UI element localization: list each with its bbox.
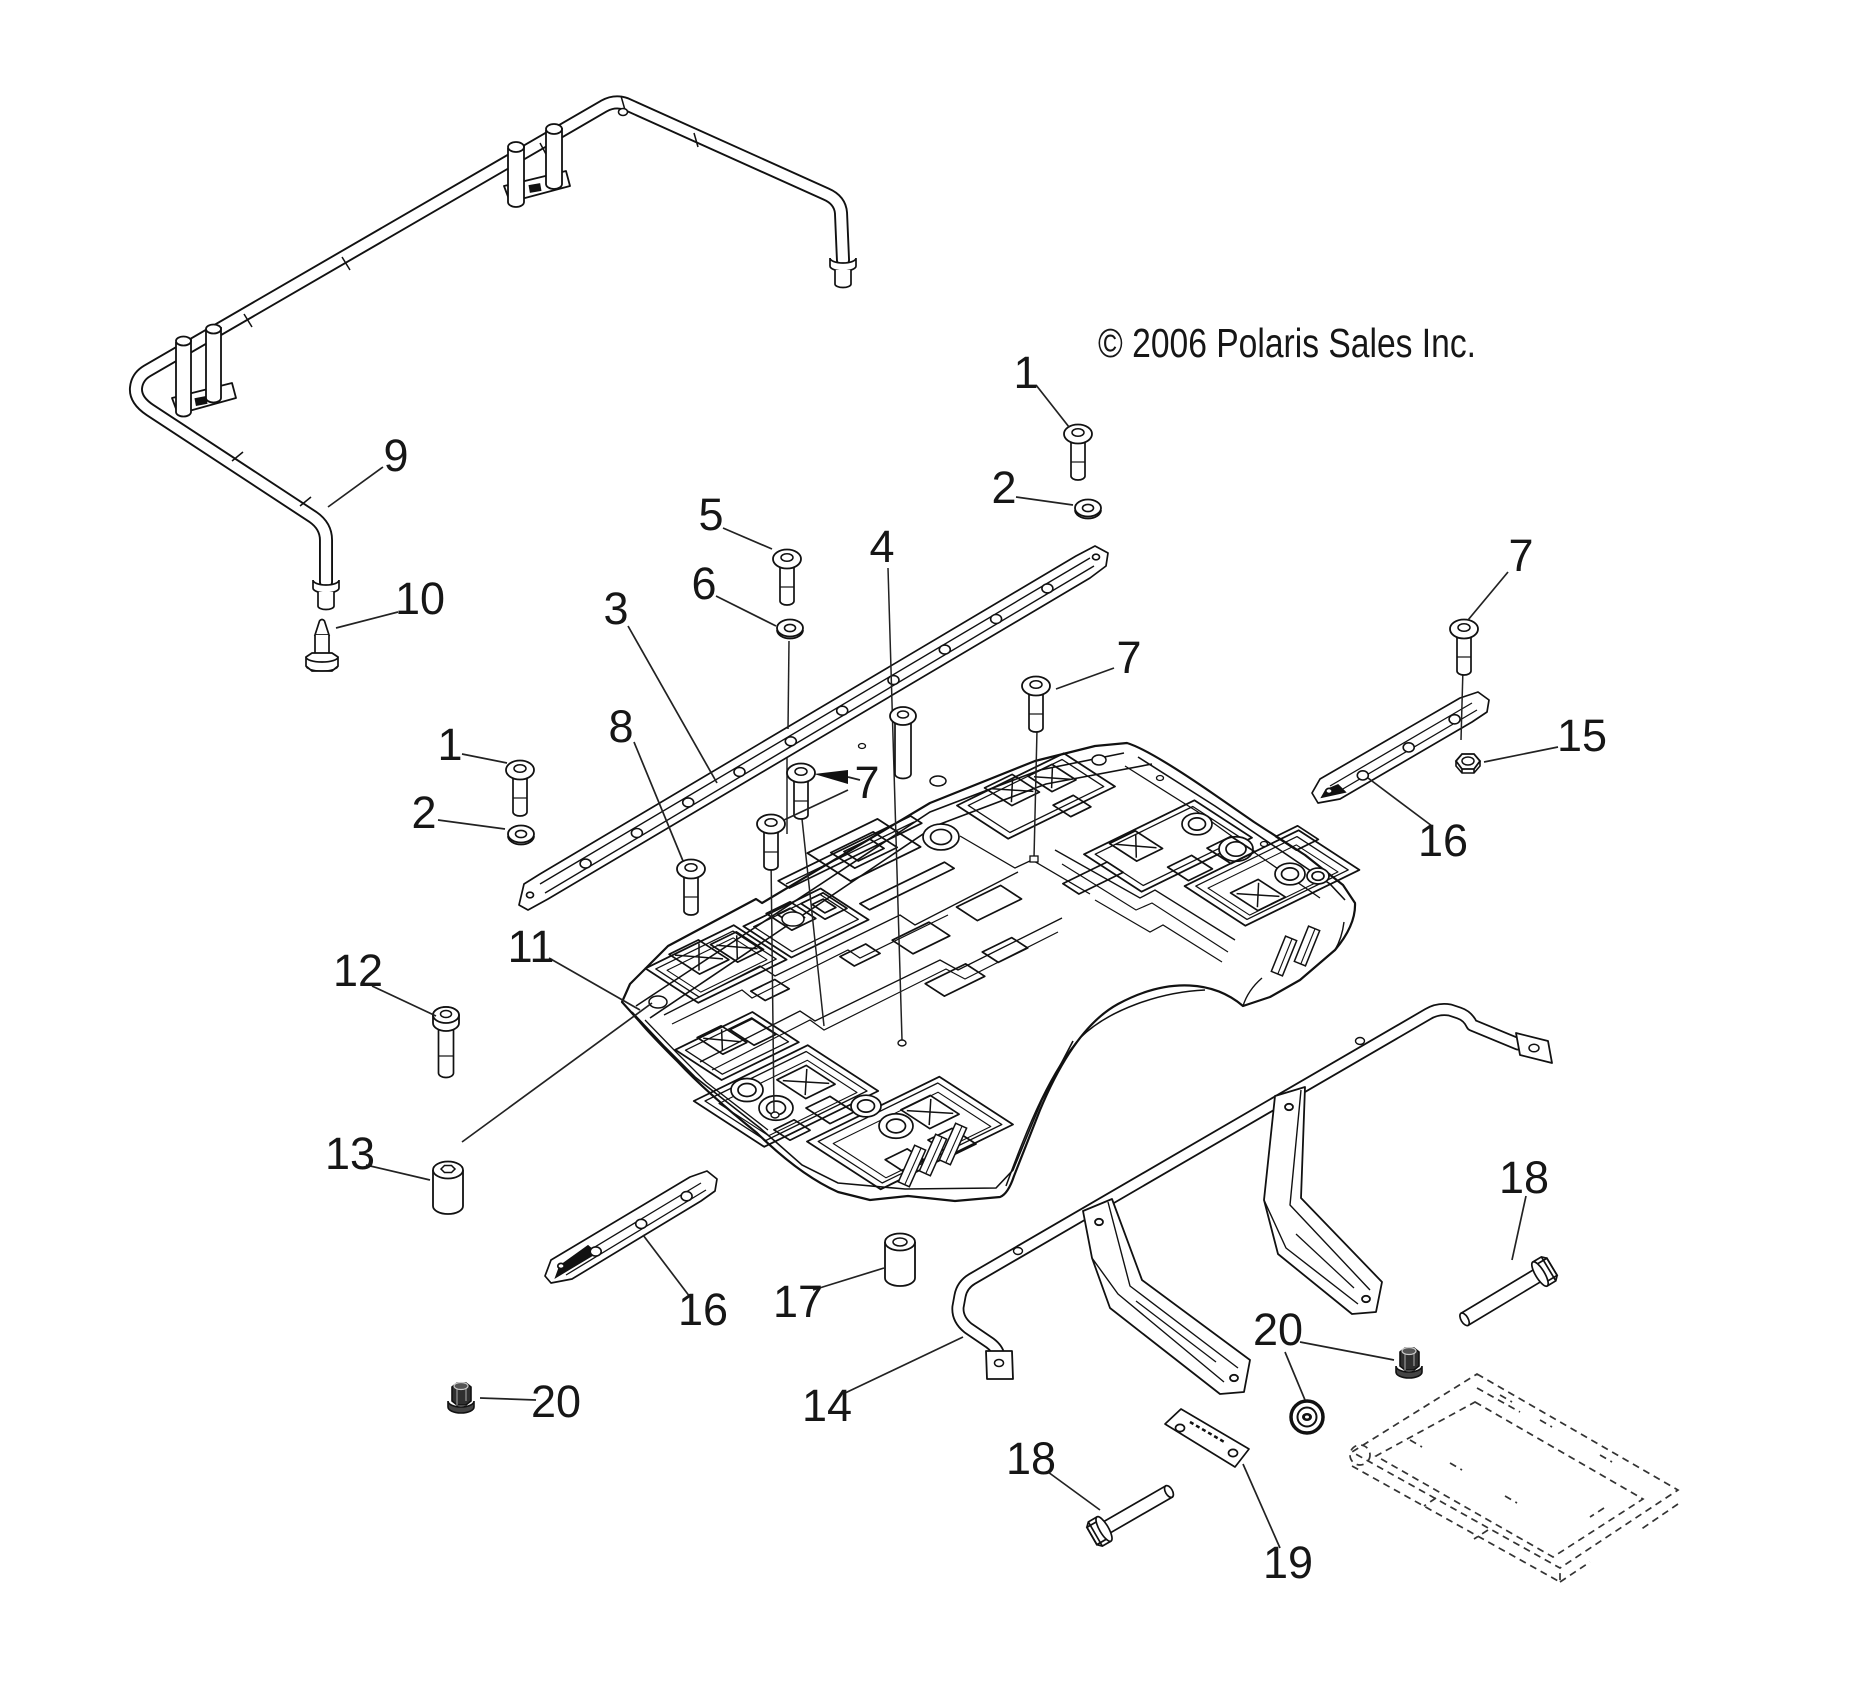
svg-text:16: 16 [1418,815,1468,866]
svg-text:© 2006 Polaris Sales Inc.: © 2006 Polaris Sales Inc. [1098,320,1476,366]
svg-text:5: 5 [698,489,723,540]
svg-text:15: 15 [1557,710,1607,761]
svg-text:12: 12 [333,945,383,996]
svg-text:20: 20 [1253,1304,1303,1355]
svg-text:8: 8 [608,701,633,752]
svg-text:18: 18 [1006,1433,1056,1484]
svg-text:7: 7 [1508,530,1533,581]
svg-text:17: 17 [773,1276,823,1327]
svg-text:4: 4 [869,521,894,572]
svg-text:1: 1 [1013,347,1038,398]
svg-text:10: 10 [395,573,445,624]
svg-text:13: 13 [325,1128,375,1179]
svg-text:7: 7 [854,757,879,808]
svg-text:7: 7 [1116,632,1141,683]
svg-text:11: 11 [508,921,555,972]
svg-text:19: 19 [1263,1537,1313,1588]
svg-text:2: 2 [991,462,1016,513]
svg-text:2: 2 [411,787,436,838]
svg-text:6: 6 [691,558,716,609]
svg-text:16: 16 [678,1284,728,1335]
svg-text:18: 18 [1499,1152,1549,1203]
svg-text:3: 3 [603,583,628,634]
svg-text:1: 1 [437,719,462,770]
svg-text:14: 14 [802,1380,852,1431]
svg-text:20: 20 [531,1376,581,1427]
svg-text:9: 9 [383,430,408,481]
